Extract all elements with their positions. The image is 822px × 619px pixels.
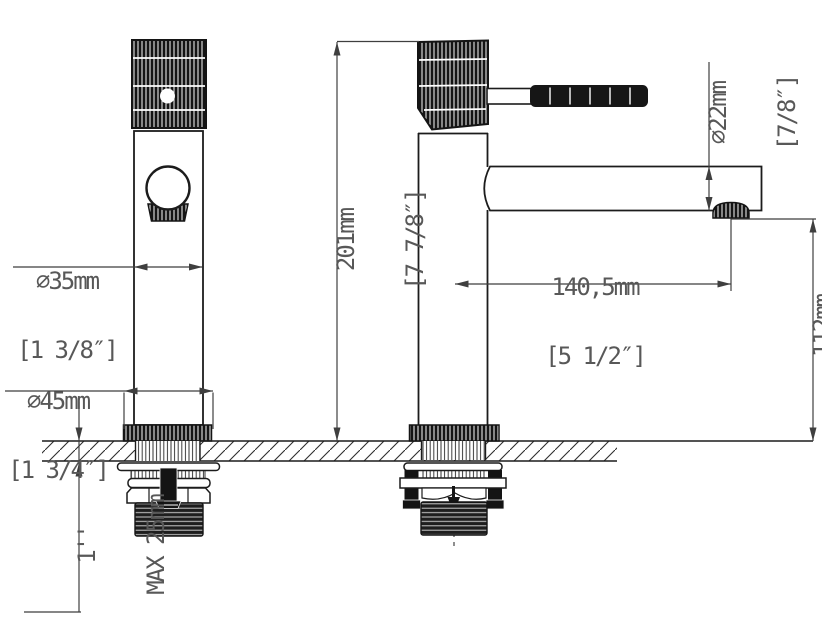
faucet-technical-drawing: ∅35mm [1 3/8″] ∅45mm [1 3/4″] 201mm [7 7… bbox=[0, 0, 822, 619]
side-threaded-shank bbox=[422, 441, 486, 460]
drawing-linework bbox=[0, 0, 822, 619]
handle-lever bbox=[487, 85, 648, 107]
side-body bbox=[418, 133, 488, 425]
dim-total-height-lines bbox=[334, 42, 420, 442]
side-supply-pipe bbox=[421, 502, 487, 535]
front-view bbox=[124, 40, 212, 441]
front-fixing-bolt bbox=[156, 468, 181, 509]
dim-spout-height-lines bbox=[731, 219, 817, 441]
side-washer bbox=[404, 463, 502, 471]
lever-rod bbox=[487, 89, 532, 105]
side-cap bbox=[418, 41, 488, 130]
side-base-ring bbox=[410, 425, 500, 441]
front-threaded-shank bbox=[136, 441, 201, 461]
cartridge-detail bbox=[147, 167, 190, 222]
front-base-ring bbox=[124, 425, 212, 441]
dim-deck-thickness-lines bbox=[24, 402, 83, 612]
dim-spout-reach-lines bbox=[455, 219, 731, 292]
front-cap bbox=[132, 40, 206, 128]
cap-pin-hole bbox=[160, 89, 175, 104]
aerator bbox=[713, 203, 749, 219]
